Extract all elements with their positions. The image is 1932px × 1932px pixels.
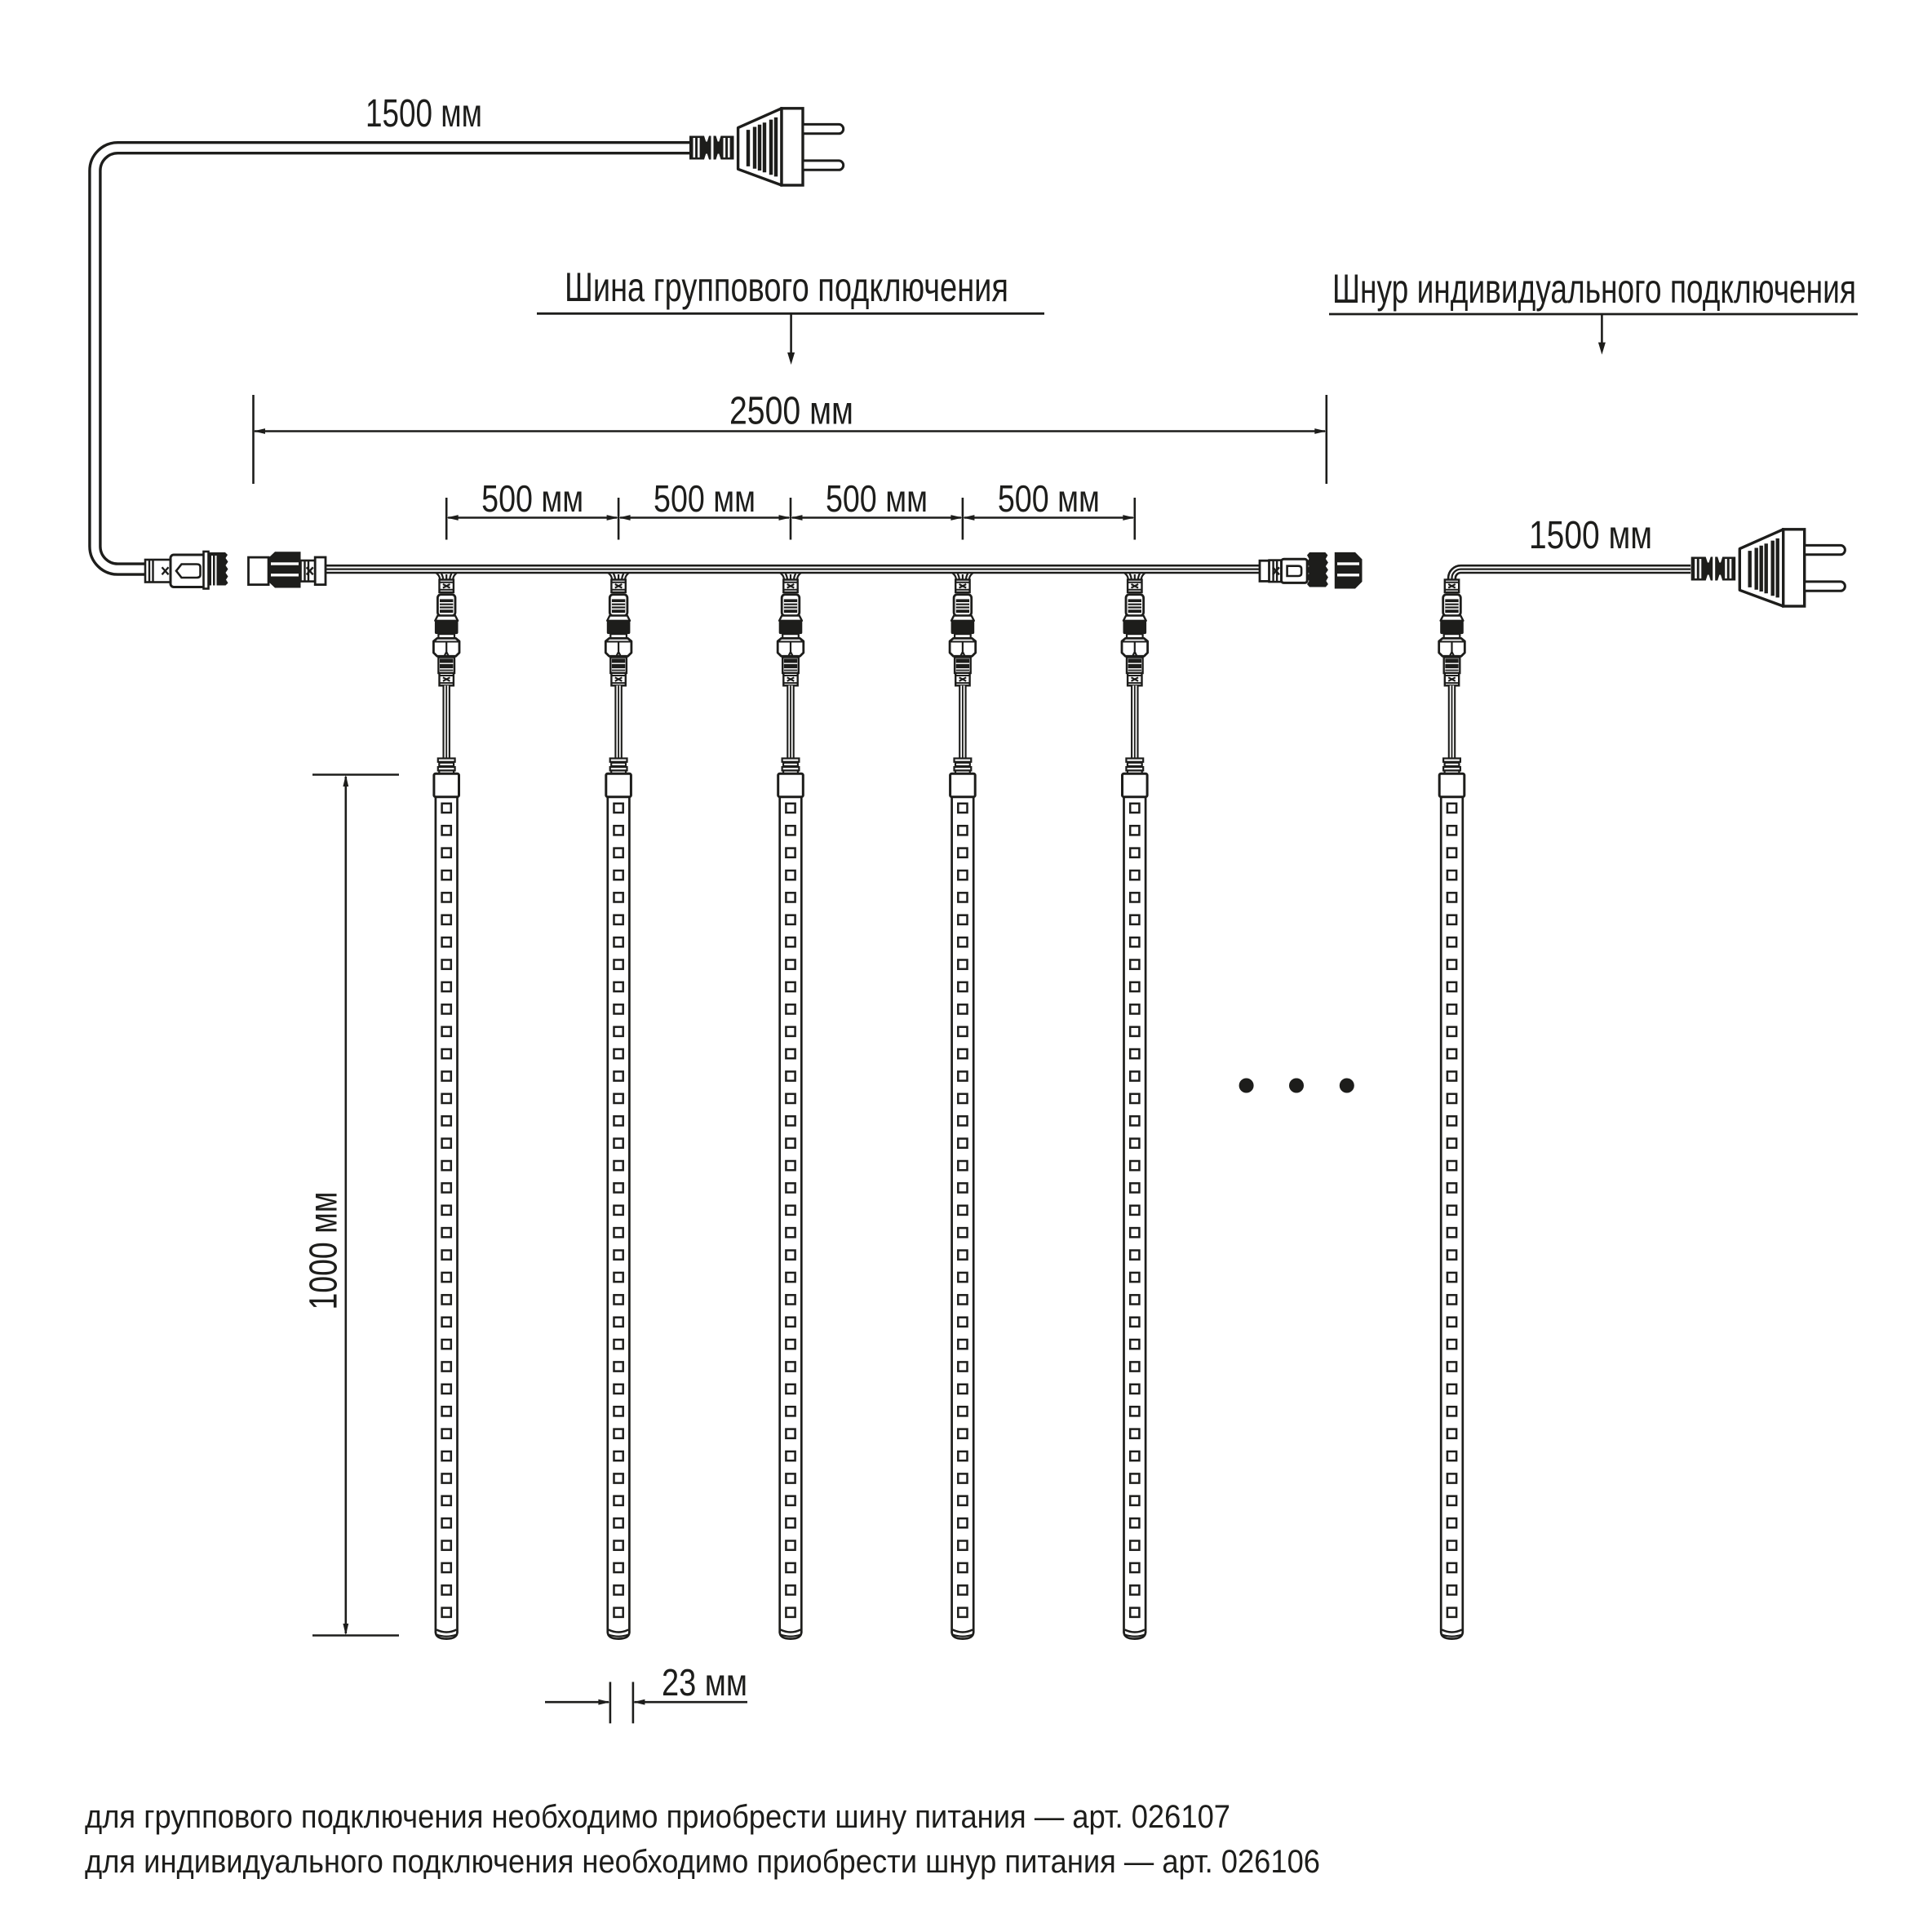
svg-text:23 мм: 23 мм (662, 1661, 747, 1704)
svg-text:500 мм: 500 мм (654, 477, 756, 520)
svg-text:1500 мм: 1500 мм (366, 92, 482, 135)
svg-text:Шина группового подключения: Шина группового подключения (565, 264, 1008, 310)
svg-text:Шнур индивидуального подключен: Шнур индивидуального подключения (1332, 266, 1856, 312)
svg-text:500 мм: 500 мм (481, 477, 583, 520)
svg-text:1500 мм: 1500 мм (1529, 514, 1652, 557)
svg-text:2500 мм: 2500 мм (729, 390, 853, 433)
svg-text:500 мм: 500 мм (998, 477, 1100, 520)
svg-text:для индивидуального подключени: для индивидуального подключения необходи… (85, 1844, 1320, 1880)
svg-text:для группового подключения нео: для группового подключения необходимо пр… (85, 1799, 1230, 1835)
svg-text:500 мм: 500 мм (826, 477, 928, 520)
svg-text:1000 мм: 1000 мм (303, 1192, 346, 1310)
